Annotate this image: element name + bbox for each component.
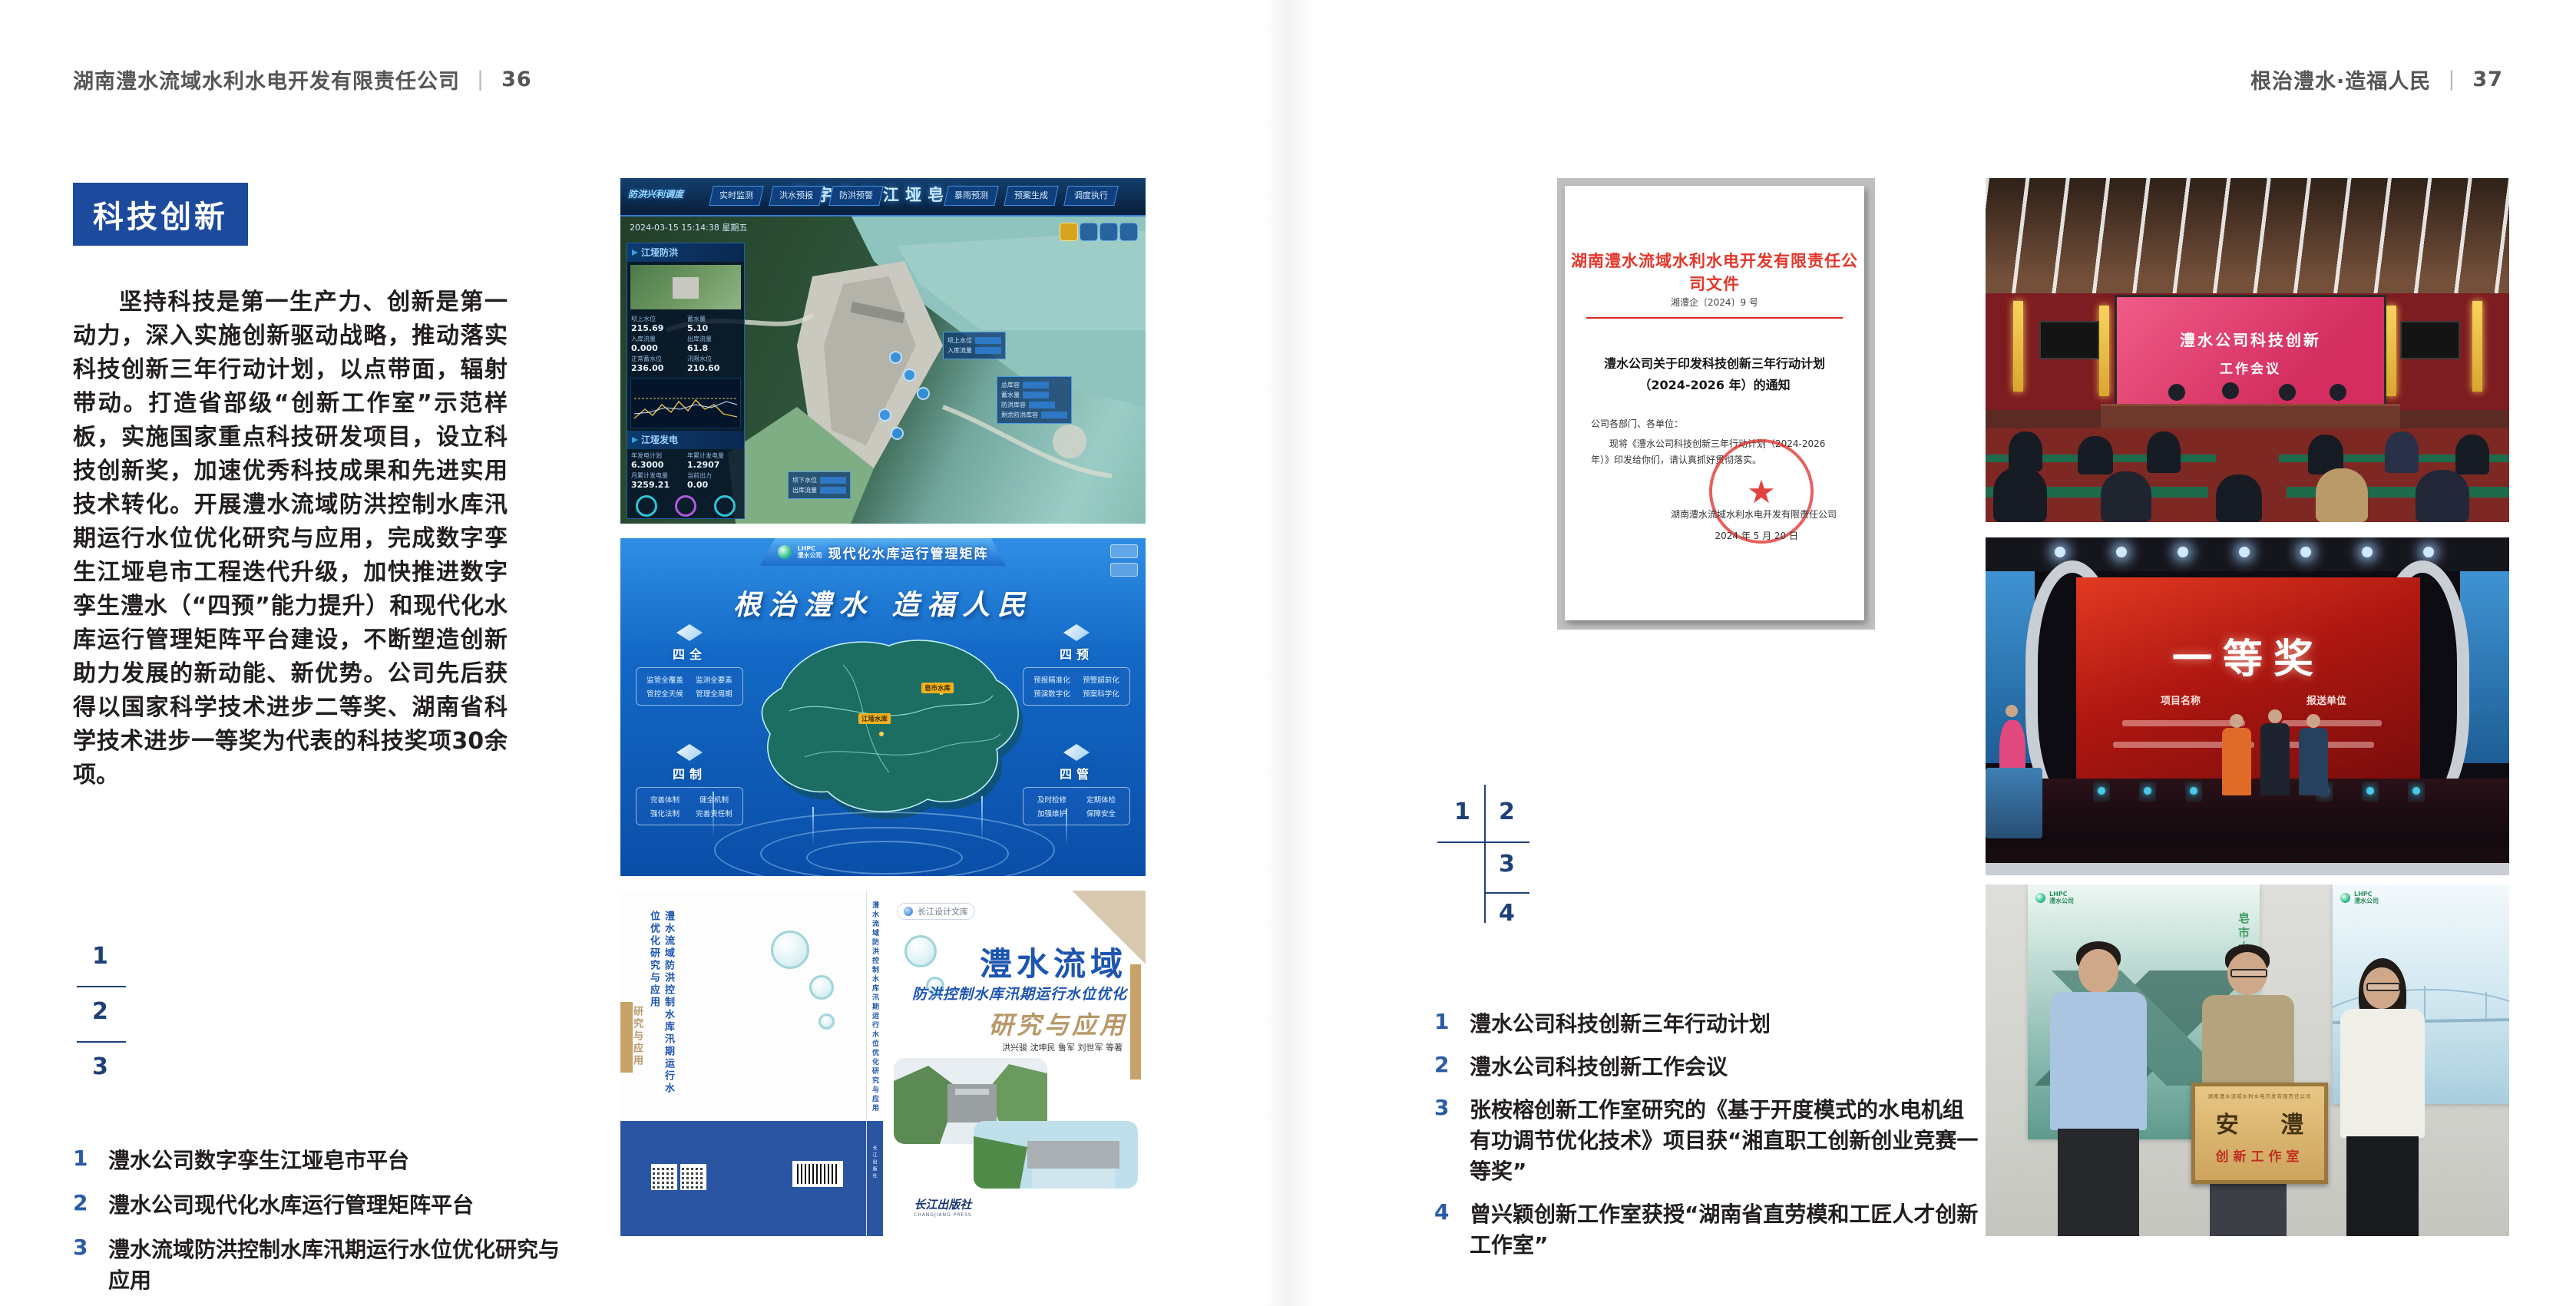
lhpc-logo-text: LHPC 澧水公司 bbox=[798, 545, 822, 559]
figure-award-ceremony-photo: 一等奖 项目名称 报送单位 bbox=[1986, 537, 2509, 875]
figure-index-divider bbox=[1484, 785, 1486, 923]
plaque-subtitle: 创新工作室 bbox=[2195, 1146, 2324, 1165]
light-pillar bbox=[812, 807, 814, 845]
dashboard-mode-label: 防洪兴利调度 bbox=[628, 187, 683, 200]
figure-index-2: 2 bbox=[92, 998, 108, 1025]
awardee-blue-uniform bbox=[2299, 728, 2328, 795]
caption-row: 3 澧水流域防洪控制水库汛期运行水位优化研究与应用 bbox=[73, 1235, 564, 1296]
panel-item: 监测全要素 bbox=[692, 674, 736, 685]
panel-value-chip bbox=[1029, 402, 1055, 408]
power-metrics-grid: 年发电计划6.3000 年累计发电量1.2907 月累计发电量3259.21 当… bbox=[627, 449, 744, 492]
book-title-main: 澧水流域 bbox=[906, 938, 1127, 985]
page-number-right: 37 bbox=[2472, 68, 2503, 91]
award-screen-title: 一等奖 bbox=[2076, 627, 2420, 684]
document-title-line1: 澧水公司关于印发科技创新三年行动计划 bbox=[1565, 353, 1864, 372]
figure-meeting-photo: 澧水公司科技创新 工作会议 bbox=[1986, 178, 2509, 522]
user-icon[interactable] bbox=[1060, 223, 1078, 241]
award-column-project: 项目名称 bbox=[2161, 693, 2201, 707]
caption-number: 1 bbox=[1434, 1009, 1454, 1034]
stage-light-fixture bbox=[2093, 782, 2110, 802]
lhpc-logo-text: LHPC 澧水公司 bbox=[2354, 891, 2379, 904]
audience-silhouette bbox=[1993, 467, 2047, 522]
panel-label: 剩余防洪库容 bbox=[1001, 411, 1038, 419]
tab-plan-generation[interactable]: 预案生成 bbox=[1004, 186, 1059, 206]
audience-silhouette bbox=[2101, 471, 2151, 522]
spotlight-icon bbox=[2178, 547, 2188, 557]
plaque-header: 湖南澧水流域水利水电开发有限责任公司 bbox=[2195, 1092, 2324, 1099]
audience-silhouette bbox=[2455, 435, 2489, 474]
audience-silhouette bbox=[2385, 431, 2419, 473]
host-podium bbox=[1986, 768, 2042, 838]
presenter-silhouette bbox=[2268, 709, 2282, 723]
person-white-tee bbox=[2340, 1009, 2425, 1138]
caption-text: 张桉榕创新工作室研究的《基于开度模式的水电机组有功调节优化技术》项目获“湘直职工… bbox=[1470, 1095, 1979, 1187]
lhpc-logo-icon bbox=[2035, 893, 2045, 903]
caption-number: 2 bbox=[73, 1190, 93, 1215]
matrix-panel-sizhi: 四制 完善体制 健全机制 强化法制 完善责任制 bbox=[636, 744, 743, 825]
presenter-dark-suit bbox=[2260, 723, 2290, 795]
stage-light-fixture bbox=[2362, 782, 2379, 802]
dashboard-left-panel: 江垭防洪 坝上水位215.69 蓄水量5.10 入库流量0.000 出库流量61… bbox=[627, 243, 745, 519]
document-red-header: 湖南澧水流域水利水电开发有限责任公司文件 bbox=[1565, 249, 1864, 295]
metric-value: 1.2907 bbox=[687, 460, 740, 470]
caption-number: 3 bbox=[73, 1235, 93, 1260]
figure-official-document: 湖南澧水流域水利水电开发有限责任公司文件 湘澧企〔2024〕9 号 澧水公司关于… bbox=[1557, 178, 1875, 630]
gate-marker-icon[interactable] bbox=[903, 369, 916, 382]
panel-item: 强化法制 bbox=[643, 808, 687, 818]
gate-marker-icon[interactable] bbox=[917, 387, 930, 400]
spine-title: 澧水流域防洪控制水库汛期运行水位优化研究与应用 bbox=[870, 901, 880, 1132]
spotlight-icon bbox=[2423, 547, 2434, 557]
panel-label: 防洪库容 bbox=[1001, 401, 1026, 409]
panel-icon bbox=[1063, 744, 1090, 761]
metric-label: 蓄水量 bbox=[687, 315, 740, 323]
tab-flood-warning[interactable]: 防洪预警 bbox=[828, 186, 884, 206]
matrix-panel-siyu: 四预 预报精准化 预警超前化 预演数字化 预案科学化 bbox=[1023, 624, 1130, 706]
caption-text: 澧水公司现代化水库运行管理矩阵平台 bbox=[108, 1190, 474, 1221]
metric-label: 年累计发电量 bbox=[687, 451, 740, 460]
panel-value-chip bbox=[1023, 392, 1049, 398]
lhpc-logo: LHPC 澧水公司 bbox=[2340, 891, 2379, 904]
panel-title: 四管 bbox=[1023, 764, 1130, 782]
tooltip-value-chip bbox=[975, 347, 1001, 354]
caption-text: 澧水公司数字孪生江垭皂市平台 bbox=[108, 1146, 409, 1176]
book-authors: 洪兴骏 沈坤民 鲁军 刘世军 等著 bbox=[906, 1041, 1123, 1053]
panel-label: 总库容 bbox=[1001, 381, 1020, 389]
back-cover-vertical-title: 澧水流域防洪控制水库汛期运行水位优化研究与应用 bbox=[646, 911, 676, 1095]
metric-label: 出库流量 bbox=[687, 335, 740, 343]
caption-number: 2 bbox=[1434, 1052, 1454, 1077]
caption-list-left: 1 澧水公司数字孪生江垭皂市平台 2 澧水公司现代化水库运行管理矩阵平台 3 澧… bbox=[73, 1146, 564, 1296]
document-date: 2024 年 5 月 20 日 bbox=[1715, 528, 1798, 544]
series-logo: 长江设计文库 bbox=[897, 903, 975, 920]
section-title-badge: 科技创新 bbox=[73, 183, 248, 246]
panel-item: 保障安全 bbox=[1079, 808, 1123, 818]
spotlight-icon bbox=[2239, 547, 2250, 557]
figure-book-cover: 澧水流域防洪控制水库汛期运行水位优化研究与应用 研究与应用 澧水流域防洪控制水库… bbox=[620, 891, 1146, 1236]
caption-row: 2 澧水公司科技创新工作会议 bbox=[1434, 1052, 1979, 1083]
metric-value: 6.3000 bbox=[631, 460, 684, 470]
gate-marker-icon[interactable] bbox=[891, 427, 904, 440]
collapse-button[interactable] bbox=[1110, 544, 1138, 558]
panel-item: 预报精准化 bbox=[1030, 674, 1074, 685]
header-divider: | bbox=[2448, 68, 2455, 91]
glasses-icon bbox=[2230, 969, 2267, 977]
panel-item: 完善体制 bbox=[643, 794, 687, 805]
panel-item: 健全机制 bbox=[692, 794, 736, 805]
caption-text: 曾兴颖创新工作室获授“湖南省直劳模和工匠人才创新工作室” bbox=[1470, 1199, 1979, 1261]
dashboard-timestamp: 2024-03-15 15:14:38 星期五 bbox=[630, 221, 747, 233]
document-signer: 湖南澧水流域水利水电开发有限责任公司 bbox=[1671, 507, 1837, 523]
audience-silhouette bbox=[2009, 431, 2042, 471]
wall-tv bbox=[2039, 321, 2099, 359]
document-title-line2: （2024-2026 年）的通知 bbox=[1565, 375, 1864, 393]
figure-reservoir-matrix-platform: LHPC 澧水公司 现代化水库运行管理矩阵 根治澧水 造福人民 江垭水库 皂市水… bbox=[620, 538, 1146, 876]
qr-code bbox=[680, 1164, 706, 1190]
panel-label: 蓄水量 bbox=[1001, 391, 1020, 399]
gate-marker-icon[interactable] bbox=[889, 351, 902, 364]
matrix-slogan: 根治澧水 造福人民 bbox=[620, 583, 1146, 623]
document-page: 湖南澧水流域水利水电开发有限责任公司文件 湘澧企〔2024〕9 号 澧水公司关于… bbox=[1565, 186, 1864, 620]
metric-label: 月累计发电量 bbox=[631, 471, 684, 480]
caption-text: 澧水流域防洪控制水库汛期运行水位优化研究与应用 bbox=[108, 1235, 564, 1296]
tooltip-value-chip bbox=[820, 477, 846, 484]
book-back-cover: 澧水流域防洪控制水库汛期运行水位优化研究与应用 研究与应用 bbox=[620, 891, 866, 1236]
settings-icon[interactable] bbox=[1119, 223, 1138, 241]
metric-value: 61.8 bbox=[687, 343, 740, 353]
caption-list-right: 1 澧水公司科技创新三年行动计划 2 澧水公司科技创新工作会议 3 张桉榕创新工… bbox=[1434, 1009, 1979, 1261]
dam-photo-small bbox=[974, 1121, 1138, 1189]
book-front-cover: 长江设计文库 澧水流域 防洪控制水库汛期运行水位优化 研究与应用 洪兴骏 沈坤民… bbox=[883, 891, 1146, 1236]
stage-light-fixture bbox=[2408, 782, 2425, 802]
wall-lamp bbox=[2472, 301, 2482, 392]
tab-rain-forecast[interactable]: 暴雨预测 bbox=[944, 186, 999, 206]
fullscreen-icon[interactable] bbox=[1080, 223, 1098, 241]
caption-row: 1 澧水公司数字孪生江垭皂市平台 bbox=[73, 1146, 564, 1176]
glasses-icon bbox=[2366, 983, 2400, 991]
metric-value: 0.000 bbox=[631, 343, 684, 353]
tooltip-label: 坝下水位 bbox=[792, 476, 817, 484]
matrix-title-bar: LHPC 澧水公司 现代化水库运行管理矩阵 bbox=[760, 538, 1006, 566]
metric-value: 3259.21 bbox=[631, 480, 684, 490]
water-droplet-graphic bbox=[809, 975, 834, 1000]
metric-label: 年发电计划 bbox=[631, 451, 684, 460]
matrix-panel-siquan: 四全 监管全覆盖 监测全要素 管控全天候 管理全周期 bbox=[636, 624, 743, 706]
person-head bbox=[2078, 949, 2118, 994]
tab-realtime-monitoring[interactable]: 实时监测 bbox=[709, 186, 764, 206]
panel-item: 加强维护 bbox=[1030, 808, 1074, 818]
tab-dispatch-execution[interactable]: 调度执行 bbox=[1063, 186, 1119, 206]
lhpc-logo-text: LHPC 澧水公司 bbox=[2049, 891, 2074, 904]
caption-number: 3 bbox=[1434, 1095, 1454, 1120]
back-cover-vertical-subtitle: 研究与应用 bbox=[630, 1006, 644, 1098]
screen-title-line1: 澧水公司科技创新 bbox=[2180, 328, 2321, 350]
figure-index-divider bbox=[1437, 841, 1529, 843]
wall-lamp bbox=[2386, 306, 2396, 396]
panel-icon bbox=[676, 624, 703, 641]
page-gutter bbox=[1263, 0, 1314, 1306]
spotlight-icon bbox=[2055, 547, 2065, 557]
document-number: 湘澧企〔2024〕9 号 bbox=[1565, 296, 1864, 309]
book-spine: 澧水流域防洪控制水库汛期运行水位优化研究与应用 长江出版社 bbox=[866, 891, 885, 1236]
person-blue-polo bbox=[2050, 992, 2147, 1130]
light-pillar bbox=[1066, 808, 1067, 845]
screen-title-line2: 工作会议 bbox=[2220, 358, 2281, 377]
panel-icon bbox=[1063, 624, 1090, 641]
awardee-orange-jacket bbox=[2222, 728, 2251, 795]
plaque-title: 安 澧 bbox=[2195, 1106, 2324, 1139]
wall-tv bbox=[2400, 321, 2460, 359]
map-label-zaoshi: 皂市水库 bbox=[921, 683, 954, 693]
panel-title: 四制 bbox=[636, 764, 743, 782]
publisher-name: 长江出版社 bbox=[914, 1196, 972, 1212]
metric-label: 正常蓄水位 bbox=[631, 355, 684, 363]
panel-item: 管理全周期 bbox=[692, 688, 736, 699]
innovation-studio-plaque: 湖南澧水流域水利水电开发有限责任公司 安 澧 创新工作室 bbox=[2191, 1083, 2328, 1184]
panel-value-chip bbox=[1023, 382, 1049, 388]
panel-title: 四预 bbox=[1023, 644, 1130, 663]
locate-icon[interactable] bbox=[1100, 223, 1118, 241]
qr-code bbox=[651, 1164, 677, 1190]
water-droplet-graphic bbox=[771, 931, 809, 969]
publisher-logo: 长江出版社 CHANGJIANG PRESS bbox=[914, 1196, 972, 1218]
caption-text: 澧水公司科技创新工作会议 bbox=[1470, 1052, 1728, 1083]
spotlight-icon bbox=[2300, 547, 2311, 557]
panelist-silhouette bbox=[2222, 382, 2239, 399]
book-title-sub: 防洪控制水库汛期运行水位优化 bbox=[891, 983, 1127, 1003]
figure-index-3: 3 bbox=[92, 1053, 108, 1080]
spine-publisher: 长江出版社 bbox=[871, 1146, 878, 1230]
water-level-mini-chart bbox=[630, 378, 741, 428]
running-header-left: 湖南澧水流域水利水电开发有限责任公司 | 36 bbox=[73, 64, 532, 94]
gauge-icon bbox=[675, 495, 696, 517]
light-pillar bbox=[981, 796, 983, 842]
book-title-tail: 研究与应用 bbox=[906, 1006, 1127, 1041]
caption-row: 4 曾兴颖创新工作室获授“湖南省直劳模和工匠人才创新工作室” bbox=[1434, 1199, 1979, 1261]
award-row-skeleton bbox=[2282, 742, 2374, 748]
audience-silhouette bbox=[2147, 431, 2181, 473]
figure-digital-twin-dashboard: 数字孪生江垭皂市 防洪兴利调度 实时监测 洪水预报 防洪预警 暴雨预测 预案生成… bbox=[620, 178, 1146, 524]
award-row-skeleton bbox=[2282, 720, 2382, 726]
panel-item: 管控全天候 bbox=[643, 688, 687, 699]
panel-item: 定期体检 bbox=[1079, 794, 1123, 805]
awardee-silhouette bbox=[2230, 714, 2244, 728]
panel-flood-title: 江垭防洪 bbox=[627, 243, 744, 262]
audience-silhouette bbox=[2078, 436, 2113, 474]
stage-light-fixture bbox=[2185, 782, 2202, 802]
spotlight-icon bbox=[2116, 547, 2127, 557]
metric-label: 当前出力 bbox=[687, 471, 740, 480]
publisher-name-en: CHANGJIANG PRESS bbox=[914, 1212, 972, 1218]
document-red-rule bbox=[1586, 317, 1843, 319]
panel-icon bbox=[676, 744, 703, 761]
wall-lamp bbox=[2099, 306, 2109, 396]
tab-flood-forecast[interactable]: 洪水预报 bbox=[769, 186, 824, 206]
spotlight-icon bbox=[2362, 547, 2373, 557]
tooltip-label: 坝上水位 bbox=[947, 336, 972, 345]
company-name: 湖南澧水流域水利水电开发有限责任公司 bbox=[73, 64, 460, 94]
stage-front-edge bbox=[1986, 863, 2509, 875]
panel-items: 预报精准化 预警超前化 预演数字化 预案科学化 bbox=[1023, 667, 1130, 706]
flood-metrics-grid: 坝上水位215.69 蓄水量5.10 入库流量0.000 出库流量61.8 正常… bbox=[627, 312, 744, 375]
panelist-silhouette bbox=[2168, 384, 2185, 401]
panel-value-chip bbox=[1041, 412, 1067, 418]
figure-index-2: 2 bbox=[1499, 798, 1515, 825]
caption-row: 2 澧水公司现代化水库运行管理矩阵平台 bbox=[73, 1190, 564, 1221]
page-number-left: 36 bbox=[501, 68, 532, 91]
panel-item: 预警超前化 bbox=[1079, 674, 1123, 685]
series-logo-icon bbox=[904, 907, 913, 916]
audience-silhouette bbox=[2416, 470, 2469, 522]
panel-title: 四全 bbox=[636, 644, 743, 663]
panel-item: 完善责任制 bbox=[692, 808, 736, 818]
lhpc-logo-icon bbox=[778, 545, 792, 559]
meeting-ceiling bbox=[1986, 178, 2509, 305]
caption-number: 4 bbox=[1434, 1199, 1454, 1225]
award-column-unit: 报送单位 bbox=[2306, 693, 2346, 707]
running-header-right: 根治澧水·造福人民 | 37 bbox=[2250, 64, 2503, 94]
person-trousers bbox=[2346, 1136, 2419, 1236]
isbn-barcode bbox=[792, 1161, 843, 1187]
panel-item: 预案科学化 bbox=[1079, 688, 1123, 699]
figure-index-1: 1 bbox=[92, 943, 108, 970]
menu-button[interactable] bbox=[1110, 563, 1138, 577]
dam-inset-photo bbox=[630, 265, 741, 309]
document-salutation: 公司各部门、各单位： bbox=[1591, 416, 1838, 432]
metric-label: 入库流量 bbox=[631, 335, 684, 343]
panelist-silhouette bbox=[2330, 384, 2346, 401]
map-panel-reservoir: 总库容 蓄水量 防洪库容 剩余防洪库容 bbox=[997, 376, 1072, 424]
gate-marker-icon[interactable] bbox=[878, 408, 891, 422]
caption-number: 1 bbox=[73, 1146, 93, 1171]
figure-index-divider bbox=[77, 986, 126, 987]
map-tooltip-downstream: 坝下水位 出库流量 bbox=[788, 471, 851, 499]
figure-index-4: 4 bbox=[1499, 900, 1515, 927]
matrix-title: 现代化水库运行管理矩阵 bbox=[828, 543, 989, 562]
metric-label: 坝上水位 bbox=[631, 315, 684, 323]
gauge-icon bbox=[714, 495, 736, 517]
tooltip-value-chip bbox=[975, 337, 1001, 344]
audience-silhouette bbox=[2216, 474, 2262, 522]
panel-item: 及时检修 bbox=[1030, 794, 1074, 805]
metric-value: 0.00 bbox=[687, 480, 740, 490]
metric-value: 215.69 bbox=[631, 323, 684, 333]
metric-value: 210.60 bbox=[687, 363, 740, 373]
generator-status-gauges bbox=[627, 492, 744, 517]
tooltip-label: 出库流量 bbox=[792, 486, 817, 494]
metric-value: 236.00 bbox=[631, 363, 684, 373]
panel-items: 监管全覆盖 监测全要素 管控全天候 管理全周期 bbox=[636, 667, 743, 706]
slogan-text: 根治澧水·造福人民 bbox=[2250, 64, 2431, 94]
matrix-panel-siguan: 四管 及时检修 定期体检 加强维护 保障安全 bbox=[1023, 744, 1130, 825]
metric-label: 汛限水位 bbox=[687, 355, 740, 363]
award-row-skeleton bbox=[2122, 720, 2245, 726]
series-name: 长江设计文库 bbox=[918, 905, 968, 918]
tooltip-label: 入库流量 bbox=[947, 346, 972, 355]
figure-index-divider bbox=[77, 1041, 126, 1043]
water-droplet-graphic bbox=[818, 1013, 835, 1030]
gauge-icon bbox=[636, 495, 657, 517]
panel-power-title: 江垭发电 bbox=[627, 431, 744, 449]
stage-light-fixture bbox=[2139, 782, 2156, 802]
panel-item: 监管全覆盖 bbox=[643, 674, 687, 685]
map-tooltip-upstream: 坝上水位 入库流量 bbox=[943, 332, 1006, 359]
front-cover-tab bbox=[1130, 964, 1141, 1080]
light-pillar bbox=[713, 792, 714, 838]
hologram-ring bbox=[806, 841, 963, 875]
lhpc-logo: LHPC 澧水公司 bbox=[2035, 891, 2074, 904]
awardee-silhouette bbox=[2306, 714, 2320, 728]
section-body-paragraph: 坚持科技是第一生产力、创新是第一动力，深入实施创新驱动战略，推动落实科技创新三年… bbox=[73, 286, 508, 792]
panel-item: 预演数字化 bbox=[1030, 688, 1074, 699]
figure-group-photo: LHPC 澧水公司 皂市水库 LHPC 澧水公司 bbox=[1986, 884, 2509, 1236]
wall-lamp bbox=[2013, 301, 2023, 392]
lhpc-logo-icon bbox=[2340, 893, 2350, 903]
figure-index-1: 1 bbox=[1454, 798, 1470, 825]
seal-star-icon: ★ bbox=[1747, 473, 1776, 511]
audience-silhouette bbox=[2316, 468, 2368, 522]
person-trousers bbox=[2058, 1129, 2139, 1236]
panel-items: 完善体制 健全机制 强化法制 完善责任制 bbox=[636, 787, 743, 825]
panel-items: 及时检修 定期体检 加强维护 保障安全 bbox=[1023, 787, 1130, 825]
map-label-jiangya: 江垭水库 bbox=[858, 713, 891, 724]
panelist-silhouette bbox=[2279, 384, 2296, 401]
magazine-spread: { "colors":{"accent_blue":"#1c4a9c","ind… bbox=[0, 0, 2576, 1306]
metric-value: 5.10 bbox=[687, 323, 740, 333]
host-silhouette bbox=[2006, 705, 2018, 717]
figure-index-divider bbox=[1484, 892, 1529, 894]
header-divider: | bbox=[477, 68, 484, 91]
caption-text: 澧水公司科技创新三年行动计划 bbox=[1470, 1009, 1771, 1040]
figure-index-3: 3 bbox=[1499, 851, 1515, 878]
caption-row: 3 张桉榕创新工作室研究的《基于开度模式的水电机组有功调节优化技术》项目获“湘直… bbox=[1434, 1095, 1979, 1187]
caption-row: 1 澧水公司科技创新三年行动计划 bbox=[1434, 1009, 1979, 1040]
tooltip-value-chip bbox=[820, 487, 846, 494]
